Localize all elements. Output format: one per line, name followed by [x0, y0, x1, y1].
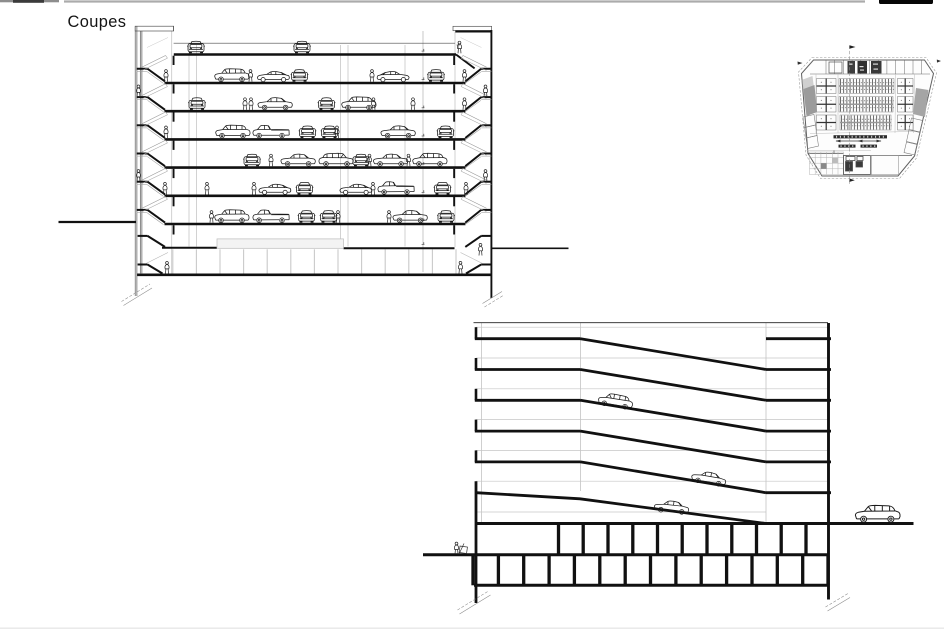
svg-text:Coupes: Coupes — [68, 13, 127, 31]
